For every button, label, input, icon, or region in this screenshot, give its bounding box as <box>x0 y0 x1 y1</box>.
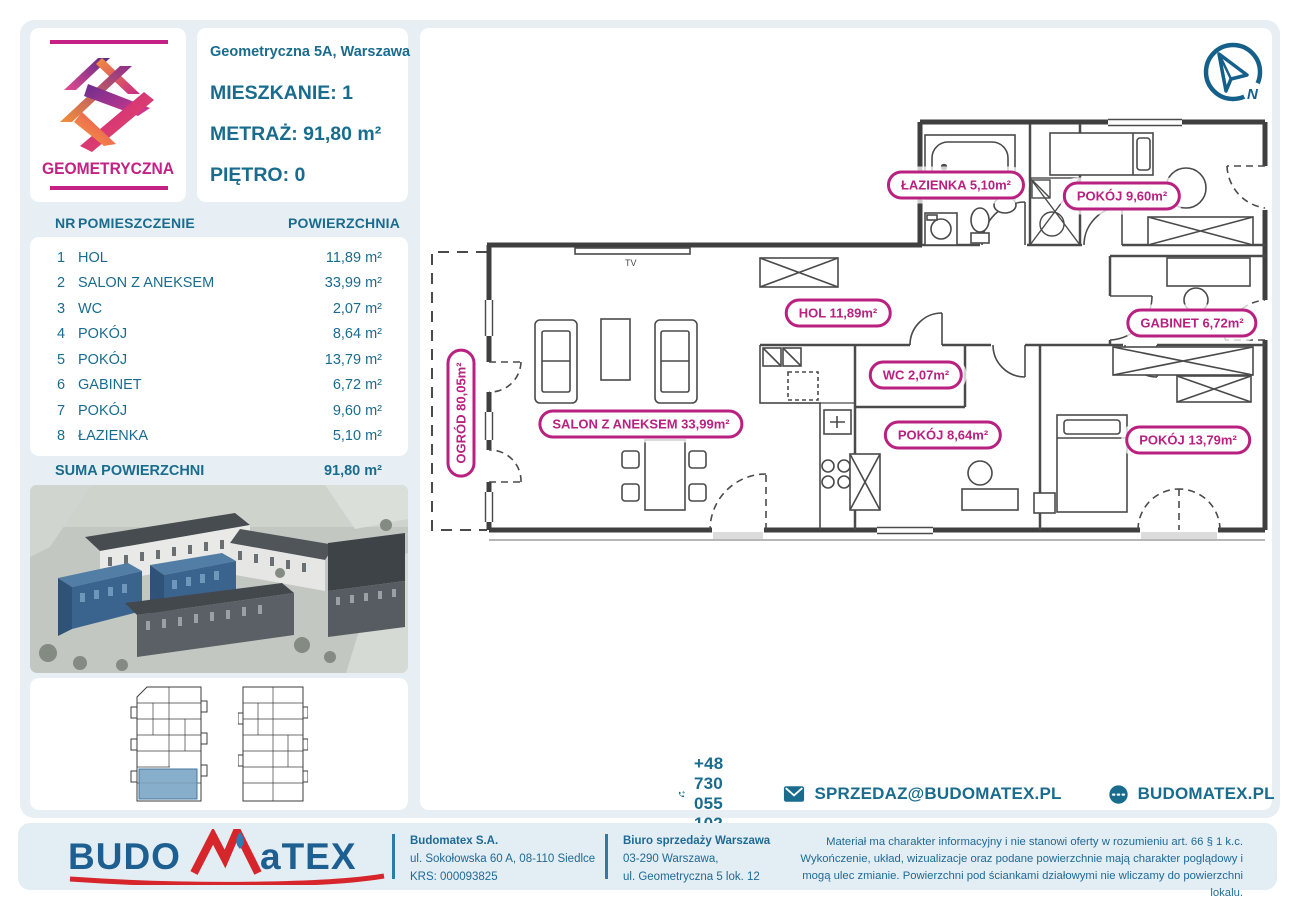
contact-row: +48 730 055 102 SPRZEDAZ@BUDOMATEX.PL BU… <box>678 754 1275 834</box>
room-label-wc: WC 2,07m² <box>869 361 963 390</box>
company-name: Budomatex S.A. <box>410 833 600 851</box>
wardrobe <box>850 454 880 510</box>
fridge <box>788 372 818 400</box>
page: GEOMETRYCZNA Geometryczna 5A, Warszawa M… <box>0 0 1300 918</box>
row-nr: 3 <box>30 301 78 317</box>
apartment-label: MIESZKANIE: <box>210 82 337 104</box>
www-globe-icon <box>1108 784 1129 805</box>
row-name: GABINET <box>78 377 288 393</box>
floor-label: PIĘTRO: <box>210 164 289 186</box>
stove <box>822 460 850 488</box>
bed-double <box>1057 415 1127 512</box>
summary-value: 91,80 m² <box>258 463 408 479</box>
header-card: Geometryczna 5A, Warszawa MIESZKANIE: 1 … <box>197 28 408 202</box>
row-area: 9,60 m² <box>288 403 408 419</box>
email-address: SPRZEDAZ@BUDOMATEX.PL <box>814 784 1061 804</box>
col-header-room: POMIESZCZENIE <box>78 215 288 231</box>
row-name: POKÓJ <box>78 326 288 342</box>
table-row: 8ŁAZIENKA5,10 m² <box>30 424 408 450</box>
metraz-value: 91,80 m² <box>303 123 381 145</box>
budomatex-logo-m <box>194 831 258 873</box>
logo-card: GEOMETRYCZNA <box>30 28 186 202</box>
phone-link[interactable]: +48 730 055 102 <box>678 754 737 834</box>
row-area: 6,72 m² <box>288 377 408 393</box>
row-name: WC <box>78 301 288 317</box>
row-nr: 7 <box>30 403 78 419</box>
website-link[interactable]: BUDOMATEX.PL <box>1108 784 1275 805</box>
chair <box>968 461 992 485</box>
row-area: 2,07 m² <box>288 301 408 317</box>
row-nr: 2 <box>30 275 78 291</box>
website-url: BUDOMATEX.PL <box>1138 784 1275 804</box>
coffee-table <box>601 319 630 380</box>
table-header-row: NR POMIESZCZENIE POWIERZCHNIA <box>30 211 408 235</box>
budomatex-logo-right: aTEX <box>260 836 357 877</box>
room-label-gabinet: GABINET 6,72m² <box>1126 309 1257 338</box>
room-table: 1HOL11,89 m² 2SALON Z ANEKSEM33,99 m² 3W… <box>30 237 408 456</box>
table-row: 7POKÓJ9,60 m² <box>30 398 408 424</box>
sofa <box>655 320 697 403</box>
floorplan-panel: TV ŁAZIENKA 5,10m² POKÓJ 9,60m² HOL 11,8… <box>420 28 1272 810</box>
tv-label: TV <box>625 258 637 268</box>
metraz-label: METRAŻ: <box>210 123 298 145</box>
tv-cabinet <box>575 248 690 254</box>
row-area: 8,64 m² <box>288 326 408 342</box>
row-nr: 4 <box>30 326 78 342</box>
row-name: ŁAZIENKA <box>78 428 288 444</box>
metraz-line: METRAŻ: 91,80 m² <box>210 123 381 146</box>
room-label-ogrod: OGRÓD 80,05m² <box>447 348 476 477</box>
row-nr: 5 <box>30 352 78 368</box>
address-line: Geometryczna 5A, Warszawa <box>210 44 410 60</box>
col-header-area: POWIERZCHNIA <box>288 215 408 231</box>
wardrobe <box>760 258 838 287</box>
budomatex-logo: BUDO aTEX <box>66 829 388 885</box>
table-summary-row: SUMA POWIERZCHNI 91,80 m² <box>30 459 408 483</box>
geometryczna-logo-icon <box>58 50 158 154</box>
footer-divider <box>392 834 395 879</box>
washing-machine <box>925 213 957 245</box>
company-info: Budomatex S.A. ul. Sokołowska 60 A, 08-1… <box>410 833 600 886</box>
row-area: 33,99 m² <box>288 275 408 291</box>
summary-label: SUMA POWIERZCHNI <box>30 463 258 479</box>
floor-line: PIĘTRO: 0 <box>210 164 305 187</box>
room-label-hol: HOL 11,89m² <box>785 299 892 328</box>
phone-icon <box>678 784 685 805</box>
nightstand <box>1034 493 1055 513</box>
wardrobe <box>1113 347 1253 375</box>
wardrobe <box>1177 376 1251 402</box>
row-name: POKÓJ <box>78 403 288 419</box>
col-header-nr: NR <box>30 215 78 231</box>
table-row: 5POKÓJ13,79 m² <box>30 347 408 373</box>
row-name: POKÓJ <box>78 352 288 368</box>
apartment-line: MIESZKANIE: 1 <box>210 82 353 105</box>
row-nr: 6 <box>30 377 78 393</box>
table-row: 2SALON Z ANEKSEM33,99 m² <box>30 271 408 297</box>
table-row: 6GABINET6,72 m² <box>30 373 408 399</box>
table-row: 4POKÓJ8,64 m² <box>30 322 408 348</box>
email-icon <box>783 785 805 803</box>
apartment-value: 1 <box>342 82 353 104</box>
kitchen <box>760 345 855 530</box>
row-name: SALON Z ANEKSEM <box>78 275 288 291</box>
mini-floorplan-right <box>238 683 308 805</box>
logo-top-rule <box>50 40 168 44</box>
phone-number: +48 730 055 102 <box>694 754 737 834</box>
room-label-lazienka: ŁAZIENKA 5,10m² <box>887 171 1025 200</box>
floor-value: 0 <box>295 164 306 186</box>
room-label-salon: SALON Z ANEKSEM 33,99m² <box>538 410 743 439</box>
row-area: 11,89 m² <box>288 250 408 266</box>
aerial-render-svg <box>30 485 408 673</box>
row-name: HOL <box>78 250 288 266</box>
company-address: ul. Sokołowska 60 A, 08-110 Siedlce <box>410 851 600 869</box>
row-nr: 1 <box>30 250 78 266</box>
logo-wordmark: GEOMETRYCZNA <box>40 156 176 180</box>
row-nr: 8 <box>30 428 78 444</box>
company-krs: KRS: 000093825 <box>410 869 600 887</box>
email-link[interactable]: SPRZEDAZ@BUDOMATEX.PL <box>783 784 1061 804</box>
table-row: 1HOL11,89 m² <box>30 245 408 271</box>
desk <box>962 489 1018 510</box>
row-area: 5,10 m² <box>288 428 408 444</box>
compass-north-label: N <box>1247 86 1259 103</box>
row-area: 13,79 m² <box>288 352 408 368</box>
sofa <box>535 320 577 403</box>
bed-single <box>1050 133 1153 175</box>
budomatex-logo-underline <box>70 876 384 884</box>
room-label-pokoj-8: POKÓJ 8,64m² <box>884 421 1002 450</box>
footer: BUDO aTEX Budomatex S.A. ul. Sokołowska … <box>18 823 1277 890</box>
logo-bottom-rule <box>50 186 168 190</box>
mini-floorplans-card <box>30 678 408 810</box>
room-label-pokoj-13: POKÓJ 13,79m² <box>1125 426 1251 455</box>
legal-disclaimer: Materiał ma charakter informacyjny i nie… <box>791 834 1243 902</box>
desk <box>1167 258 1250 286</box>
toilet <box>971 208 989 243</box>
dining-set <box>622 440 706 510</box>
footer-divider <box>605 834 608 879</box>
room-label-pokoj-9: POKÓJ 9,60m² <box>1063 182 1181 211</box>
logo-brand-text: GEOMETRYCZNA <box>42 159 174 178</box>
aerial-render-image <box>30 485 408 673</box>
wardrobe <box>1148 217 1253 245</box>
budomatex-logo-left: BUDO <box>68 836 181 877</box>
compass-icon: N <box>1195 34 1271 110</box>
table-row: 3WC2,07 m² <box>30 296 408 322</box>
mini-floorplan-left <box>130 683 208 805</box>
